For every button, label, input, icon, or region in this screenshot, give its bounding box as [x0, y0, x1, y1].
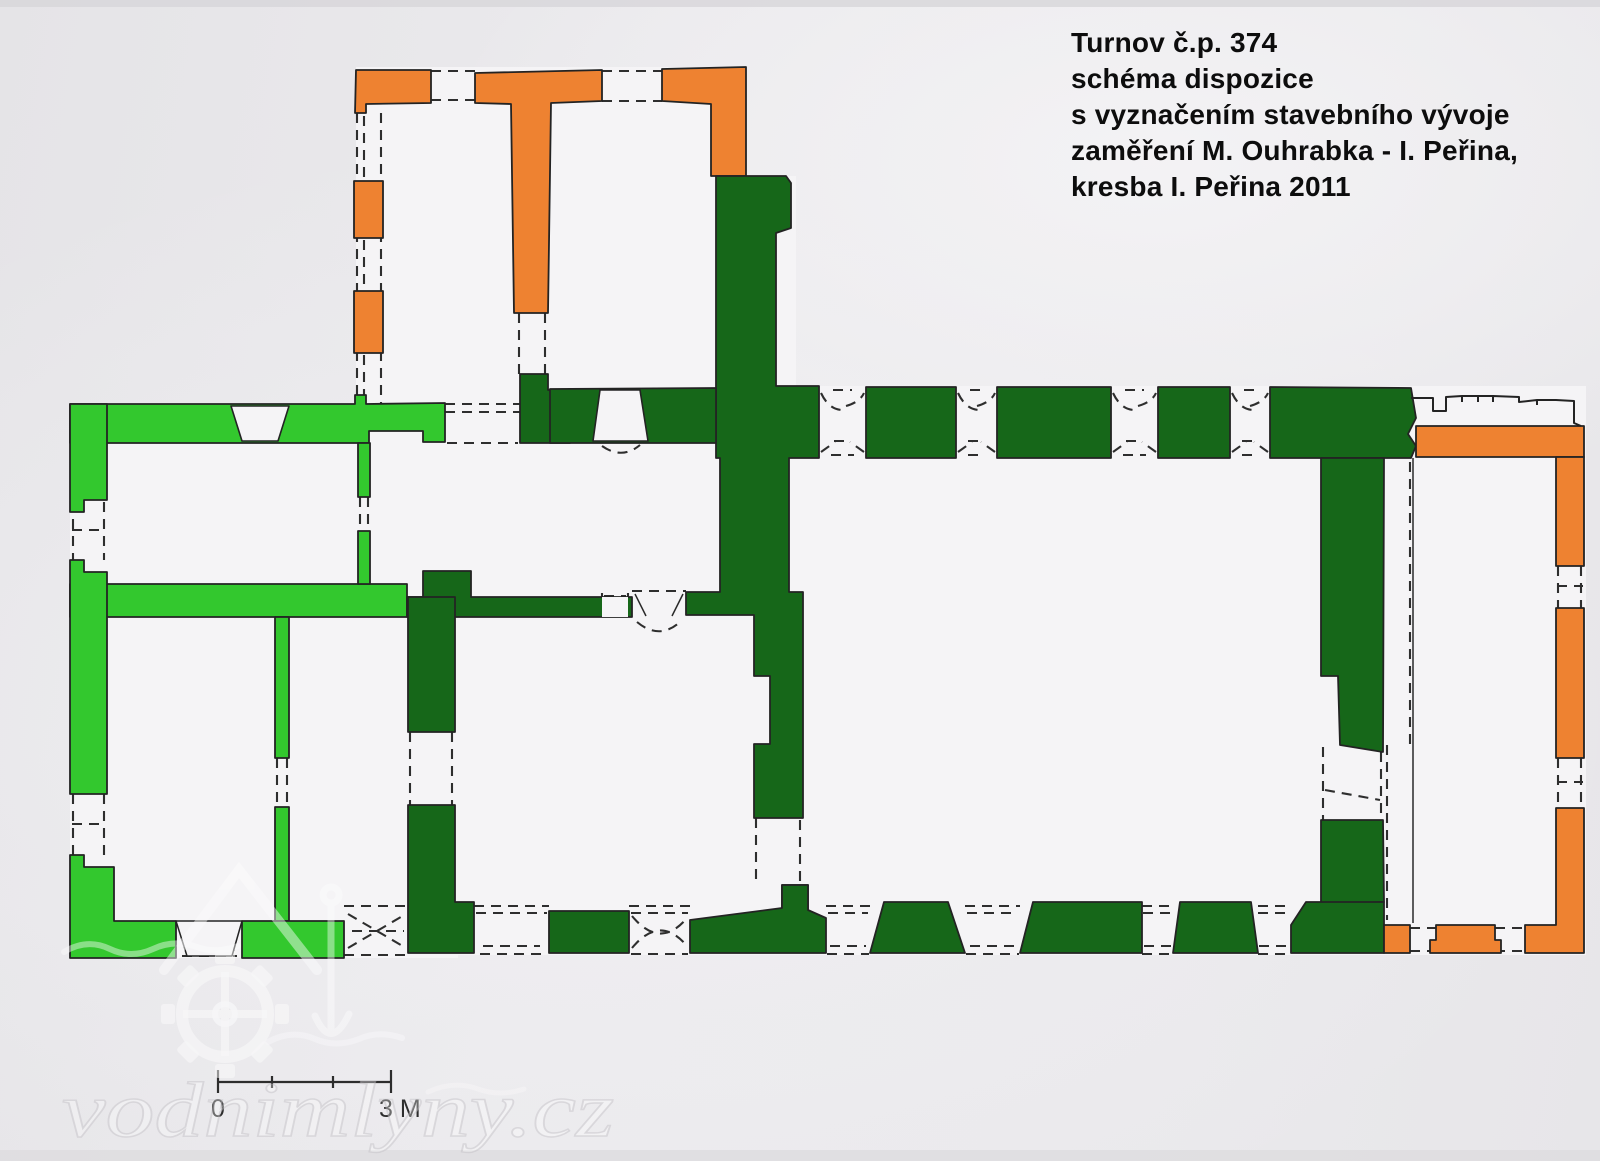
svg-text:vodnimlyny.cz: vodnimlyny.cz [62, 1066, 614, 1153]
